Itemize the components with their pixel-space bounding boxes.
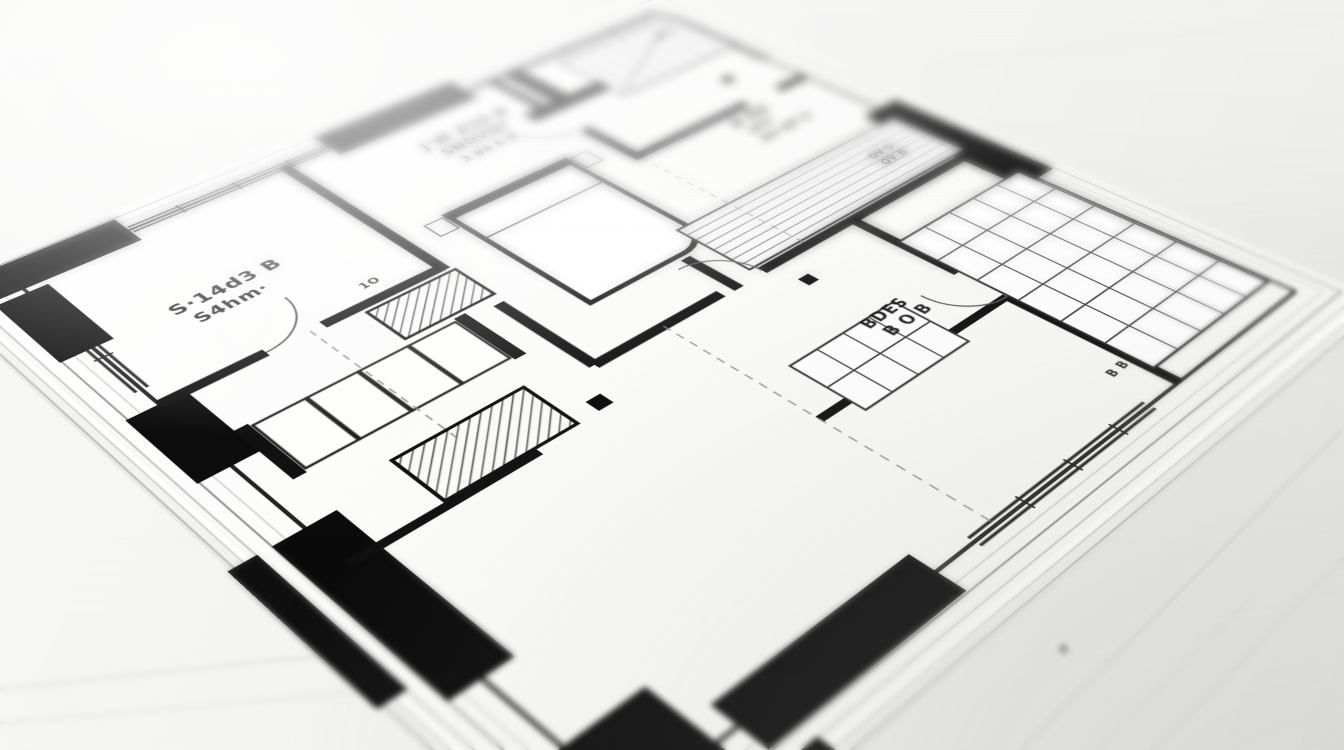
scene: S·14d3 B S4hm· J W A16 B SNOVOY 3 B4 E 6… xyxy=(0,0,1344,750)
wall-block xyxy=(0,219,142,307)
sofa xyxy=(193,269,640,544)
pin-dot xyxy=(1059,644,1068,653)
paper-edge-line xyxy=(1120,498,1344,750)
stairs xyxy=(559,17,735,95)
board-trim xyxy=(0,0,1341,750)
plan-annotation: 1O xyxy=(355,275,384,291)
exterior-walls xyxy=(0,0,1342,750)
floor-plan-drawing: S·14d3 B S4hm· J W A16 B SNOVOY 3 B4 E 6… xyxy=(0,0,1344,750)
interior-walls xyxy=(12,12,1296,750)
floor-plan-model: S·14d3 B S4hm· J W A16 B SNOVOY 3 B4 E 6… xyxy=(0,0,1344,750)
paper-edge-line xyxy=(926,13,1344,67)
paper-edge-line xyxy=(1043,593,1257,750)
